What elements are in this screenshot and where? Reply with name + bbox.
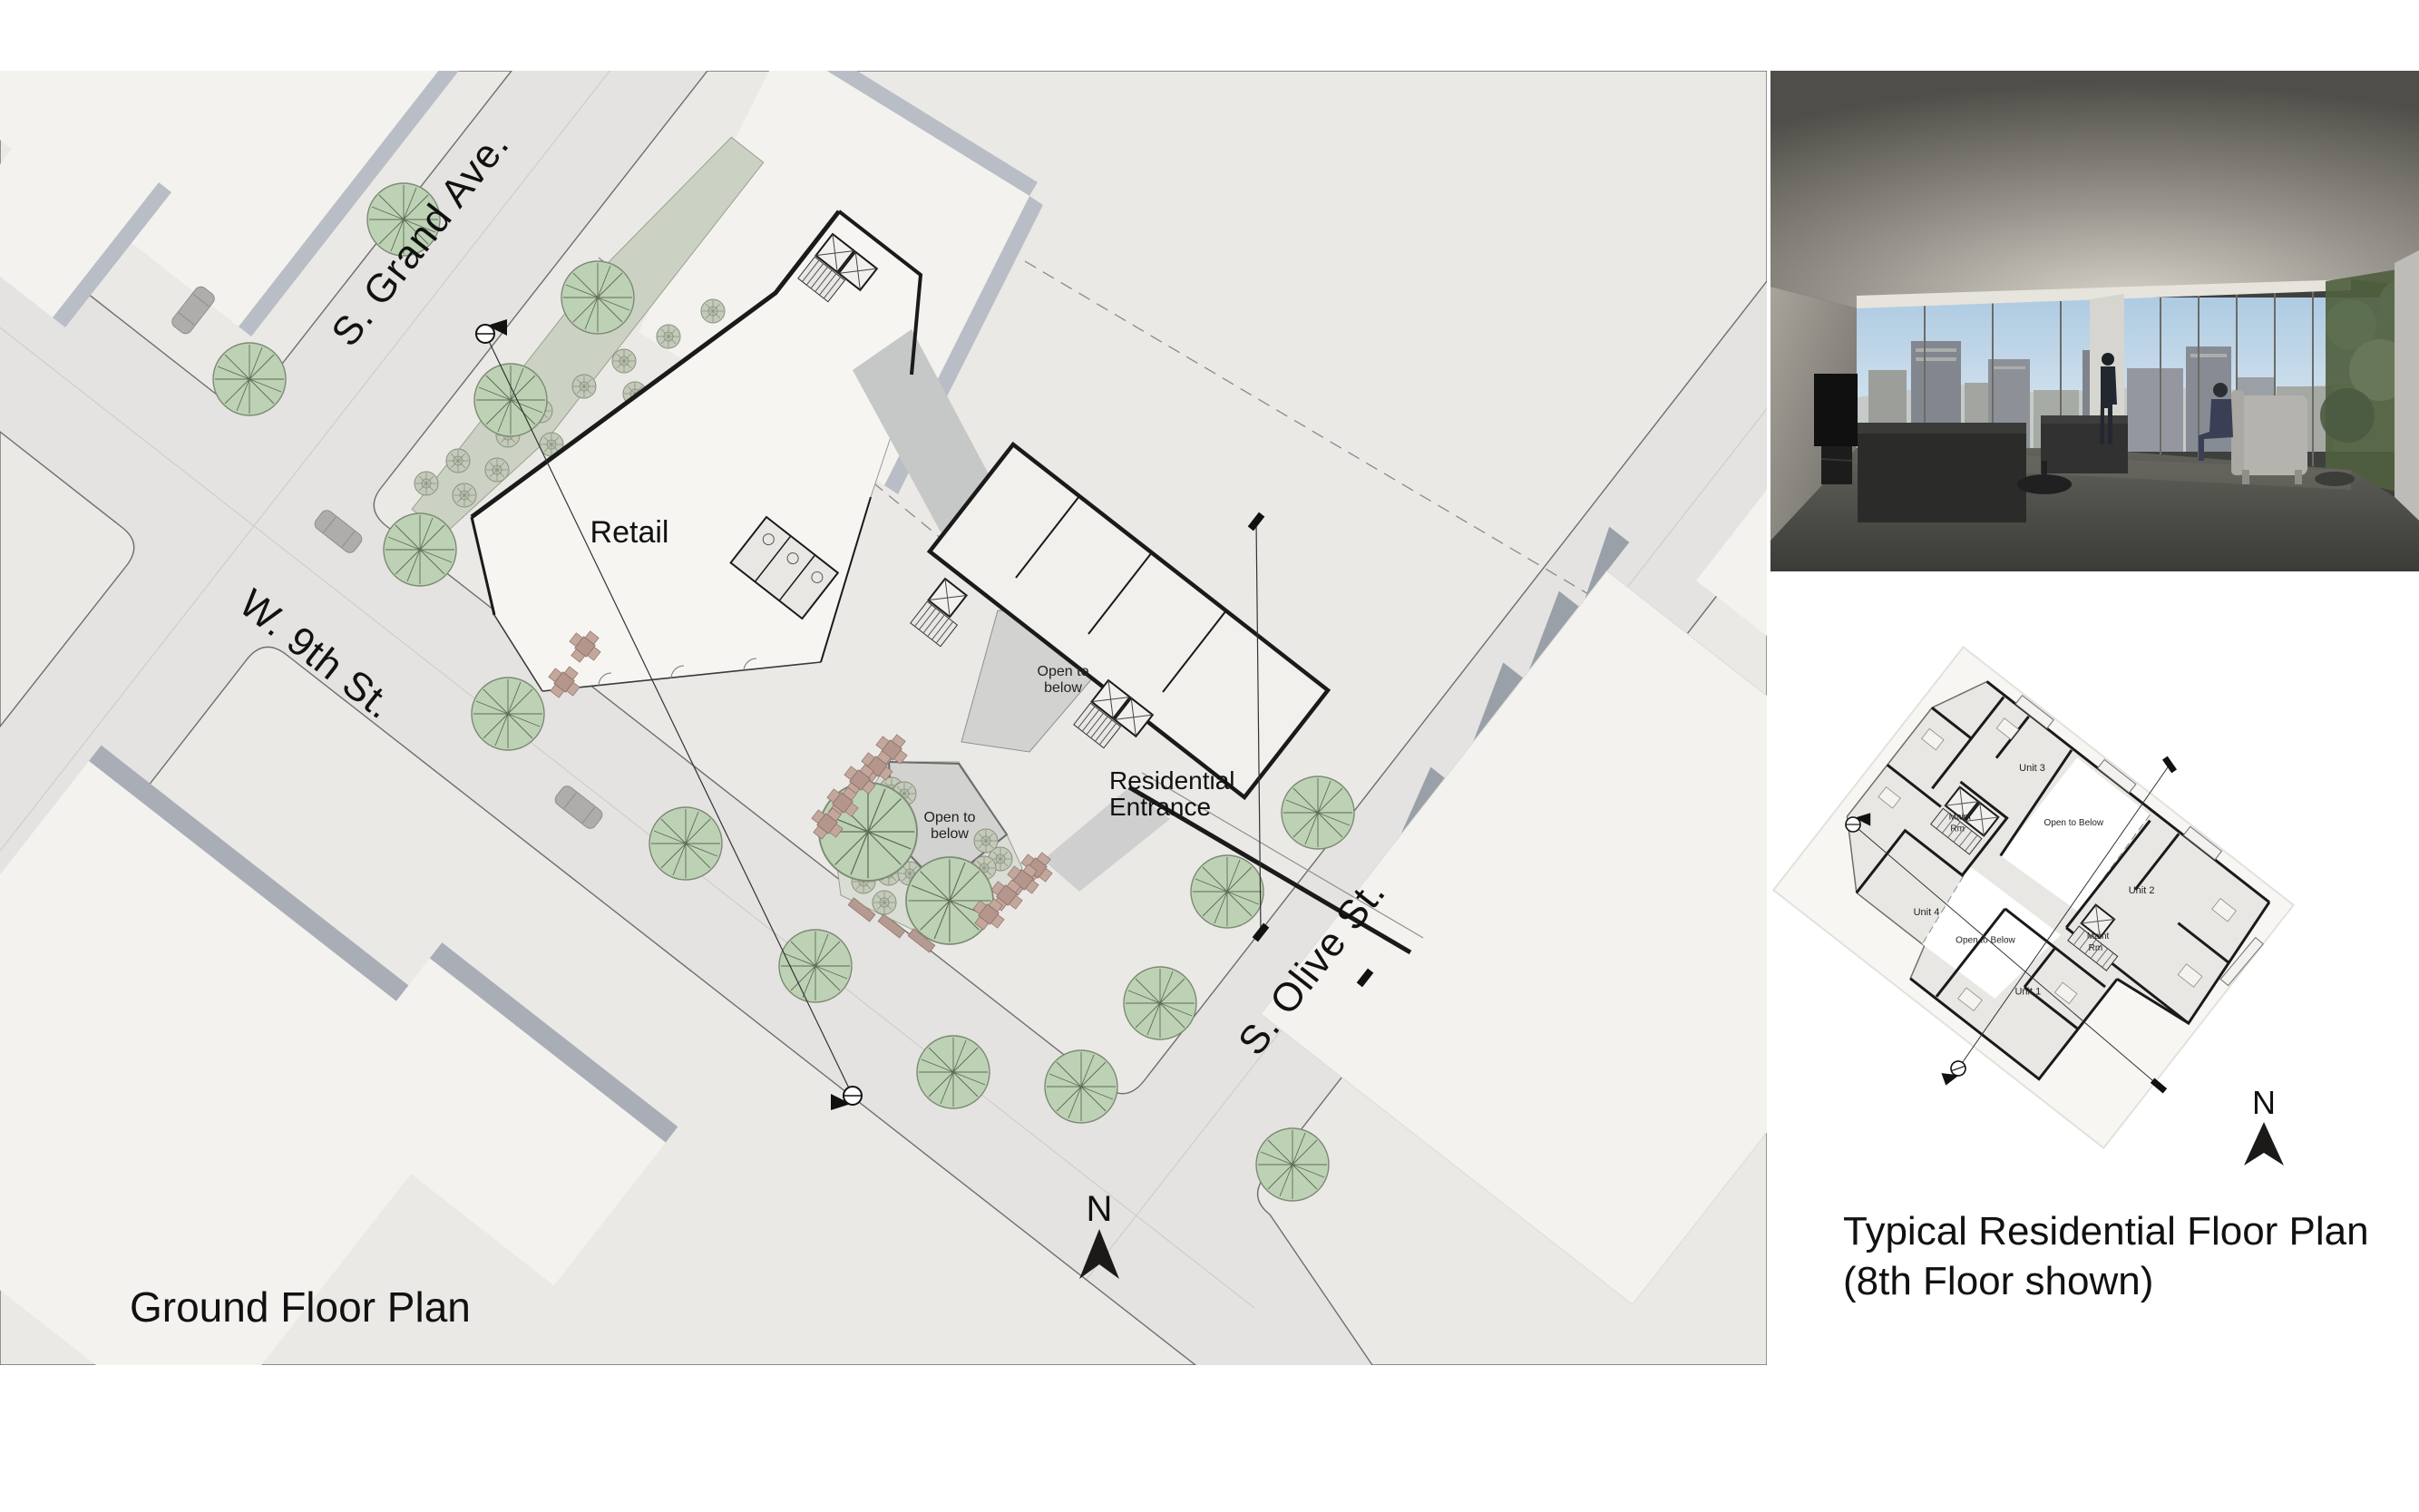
unit2-label: Unit 2 [2129,885,2155,896]
maint-rm-left-line1: Maint [1949,812,1972,822]
north-label-right: N [2252,1084,2276,1121]
open-below-a-line2: below [1044,680,1082,696]
presentation-board: S. Grand Ave. W. 9th St. S. Olive St. Re… [0,0,2419,1512]
unit1-label: Unit 1 [2014,986,2041,997]
residential-plan-caption-line2: (8th Floor shown) [1843,1259,2153,1303]
unit4-label: Unit 4 [1914,907,1940,918]
ground-floor-plan-title: Ground Floor Plan [130,1283,471,1331]
interior-rendering [1770,71,2419,571]
ceiling [1770,71,2419,308]
maint-rm-right-line2: Rm [2089,943,2103,953]
residential-plan-caption-line1: Typical Residential Floor Plan [1843,1209,2369,1253]
maint-rm-left-line2: Rm [1950,824,1965,834]
unit3-label: Unit 3 [2019,763,2045,774]
right-wall [2395,250,2419,521]
open-below-b-line1: Open to [924,810,976,825]
ground-floor-plan-drawing: S. Grand Ave. W. 9th St. S. Olive St. Re… [0,71,1767,1365]
open-below-a-line1: Open to [1038,664,1089,679]
open-below-b-line2: below [931,826,969,842]
retail-label: Retail [590,515,669,550]
open-below-right-label: Open to Below [2044,818,2104,828]
residential-entrance-line2: Entrance [1109,793,1211,821]
north-label: N [1087,1189,1113,1229]
maint-rm-right-line1: Maint [2087,932,2110,941]
residential-floor-plan-panel: Unit 3 Open to Below Unit 2 Maint Rm Mai… [1770,571,2419,1512]
open-below-center-label: Open to Below [1956,935,2015,945]
residential-entrance-line1: Residential [1109,766,1235,795]
